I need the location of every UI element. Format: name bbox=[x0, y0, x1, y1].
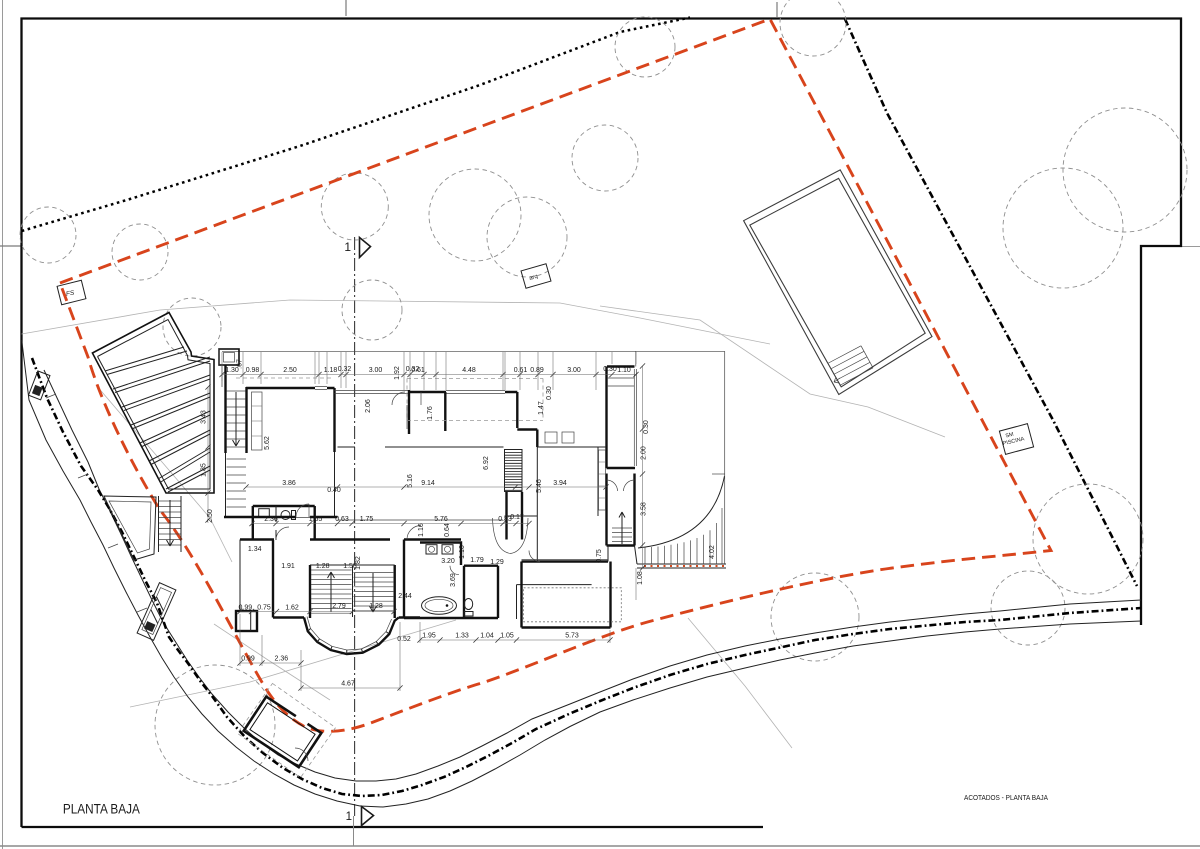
svg-text:4.48: 4.48 bbox=[462, 367, 476, 374]
svg-text:1.58: 1.58 bbox=[343, 563, 357, 570]
svg-text:2.50: 2.50 bbox=[283, 367, 297, 374]
svg-text:1.28: 1.28 bbox=[316, 563, 330, 570]
svg-text:1.47: 1.47 bbox=[538, 401, 545, 415]
svg-text:1.29: 1.29 bbox=[490, 559, 504, 566]
svg-text:3.00: 3.00 bbox=[369, 367, 383, 374]
svg-text:1.62: 1.62 bbox=[285, 605, 299, 612]
svg-text:3.20: 3.20 bbox=[441, 558, 455, 565]
svg-text:5.16: 5.16 bbox=[407, 474, 414, 488]
svg-text:2.00: 2.00 bbox=[641, 446, 648, 460]
svg-text:2.36: 2.36 bbox=[274, 656, 288, 663]
svg-text:3.00: 3.00 bbox=[567, 367, 581, 374]
svg-text:0.98: 0.98 bbox=[246, 367, 260, 374]
svg-text:1.33: 1.33 bbox=[455, 633, 469, 640]
svg-text:1.85: 1.85 bbox=[201, 463, 208, 477]
svg-text:0.30: 0.30 bbox=[546, 386, 553, 400]
svg-text:2.50: 2.50 bbox=[207, 509, 214, 523]
svg-text:0.52: 0.52 bbox=[397, 636, 411, 643]
svg-text:1.10: 1.10 bbox=[617, 367, 631, 374]
svg-text:0.30: 0.30 bbox=[603, 366, 617, 373]
svg-text:5.46: 5.46 bbox=[536, 479, 543, 493]
svg-text:1.91: 1.91 bbox=[281, 563, 295, 570]
svg-text:3.58: 3.58 bbox=[641, 502, 648, 516]
svg-text:3.86: 3.86 bbox=[282, 480, 296, 487]
svg-text:0.63: 0.63 bbox=[335, 516, 349, 523]
svg-text:1.92: 1.92 bbox=[394, 366, 401, 380]
svg-text:1.76: 1.76 bbox=[427, 406, 434, 420]
svg-text:0.75: 0.75 bbox=[257, 605, 271, 612]
svg-text:1: 1 bbox=[346, 811, 352, 823]
svg-text:1.28: 1.28 bbox=[369, 603, 383, 610]
svg-text:0.75: 0.75 bbox=[596, 549, 603, 563]
svg-text:0.17: 0.17 bbox=[510, 514, 524, 521]
svg-text:1.95: 1.95 bbox=[422, 633, 436, 640]
svg-text:0.89: 0.89 bbox=[530, 367, 544, 374]
svg-text:0.32: 0.32 bbox=[338, 366, 352, 373]
svg-text:3.94: 3.94 bbox=[553, 480, 567, 487]
svg-text:4.67: 4.67 bbox=[341, 681, 355, 688]
svg-text:1.16: 1.16 bbox=[459, 545, 466, 559]
svg-text:1.34: 1.34 bbox=[248, 546, 262, 553]
svg-text:6.92: 6.92 bbox=[483, 456, 490, 470]
svg-text:1.55: 1.55 bbox=[309, 516, 323, 523]
svg-text:5.73: 5.73 bbox=[565, 633, 579, 640]
svg-text:5.76: 5.76 bbox=[434, 516, 448, 523]
svg-text:1.75: 1.75 bbox=[360, 516, 374, 523]
svg-text:0.30: 0.30 bbox=[643, 420, 650, 434]
svg-text:0.99: 0.99 bbox=[241, 656, 255, 663]
svg-text:0.61: 0.61 bbox=[411, 367, 425, 374]
svg-text:3.69: 3.69 bbox=[450, 573, 457, 587]
svg-text:0.64: 0.64 bbox=[444, 523, 451, 537]
svg-text:1.16: 1.16 bbox=[418, 523, 425, 537]
svg-text:4.02: 4.02 bbox=[709, 545, 716, 559]
svg-text:.67: .67 bbox=[237, 359, 244, 369]
svg-text:1: 1 bbox=[344, 240, 351, 254]
svg-text:2.44: 2.44 bbox=[398, 593, 412, 600]
svg-text:1.18: 1.18 bbox=[324, 367, 338, 374]
svg-text:3.43: 3.43 bbox=[201, 410, 208, 424]
svg-text:1.79: 1.79 bbox=[470, 557, 484, 564]
svg-text:0.40: 0.40 bbox=[327, 487, 341, 494]
svg-text:PLANTA BAJA: PLANTA BAJA bbox=[63, 802, 140, 817]
svg-text:0.61: 0.61 bbox=[514, 367, 528, 374]
svg-text:1.08: 1.08 bbox=[637, 571, 644, 585]
svg-text:9.14: 9.14 bbox=[421, 480, 435, 487]
svg-text:5.62: 5.62 bbox=[264, 436, 271, 450]
svg-text:ACOTADOS - PLANTA BAJA: ACOTADOS - PLANTA BAJA bbox=[964, 793, 1048, 802]
svg-text:1.04: 1.04 bbox=[480, 633, 494, 640]
svg-text:2.36: 2.36 bbox=[264, 516, 278, 523]
svg-text:1.05: 1.05 bbox=[500, 633, 514, 640]
svg-text:2.06: 2.06 bbox=[365, 399, 372, 413]
svg-text:2.79: 2.79 bbox=[332, 603, 346, 610]
